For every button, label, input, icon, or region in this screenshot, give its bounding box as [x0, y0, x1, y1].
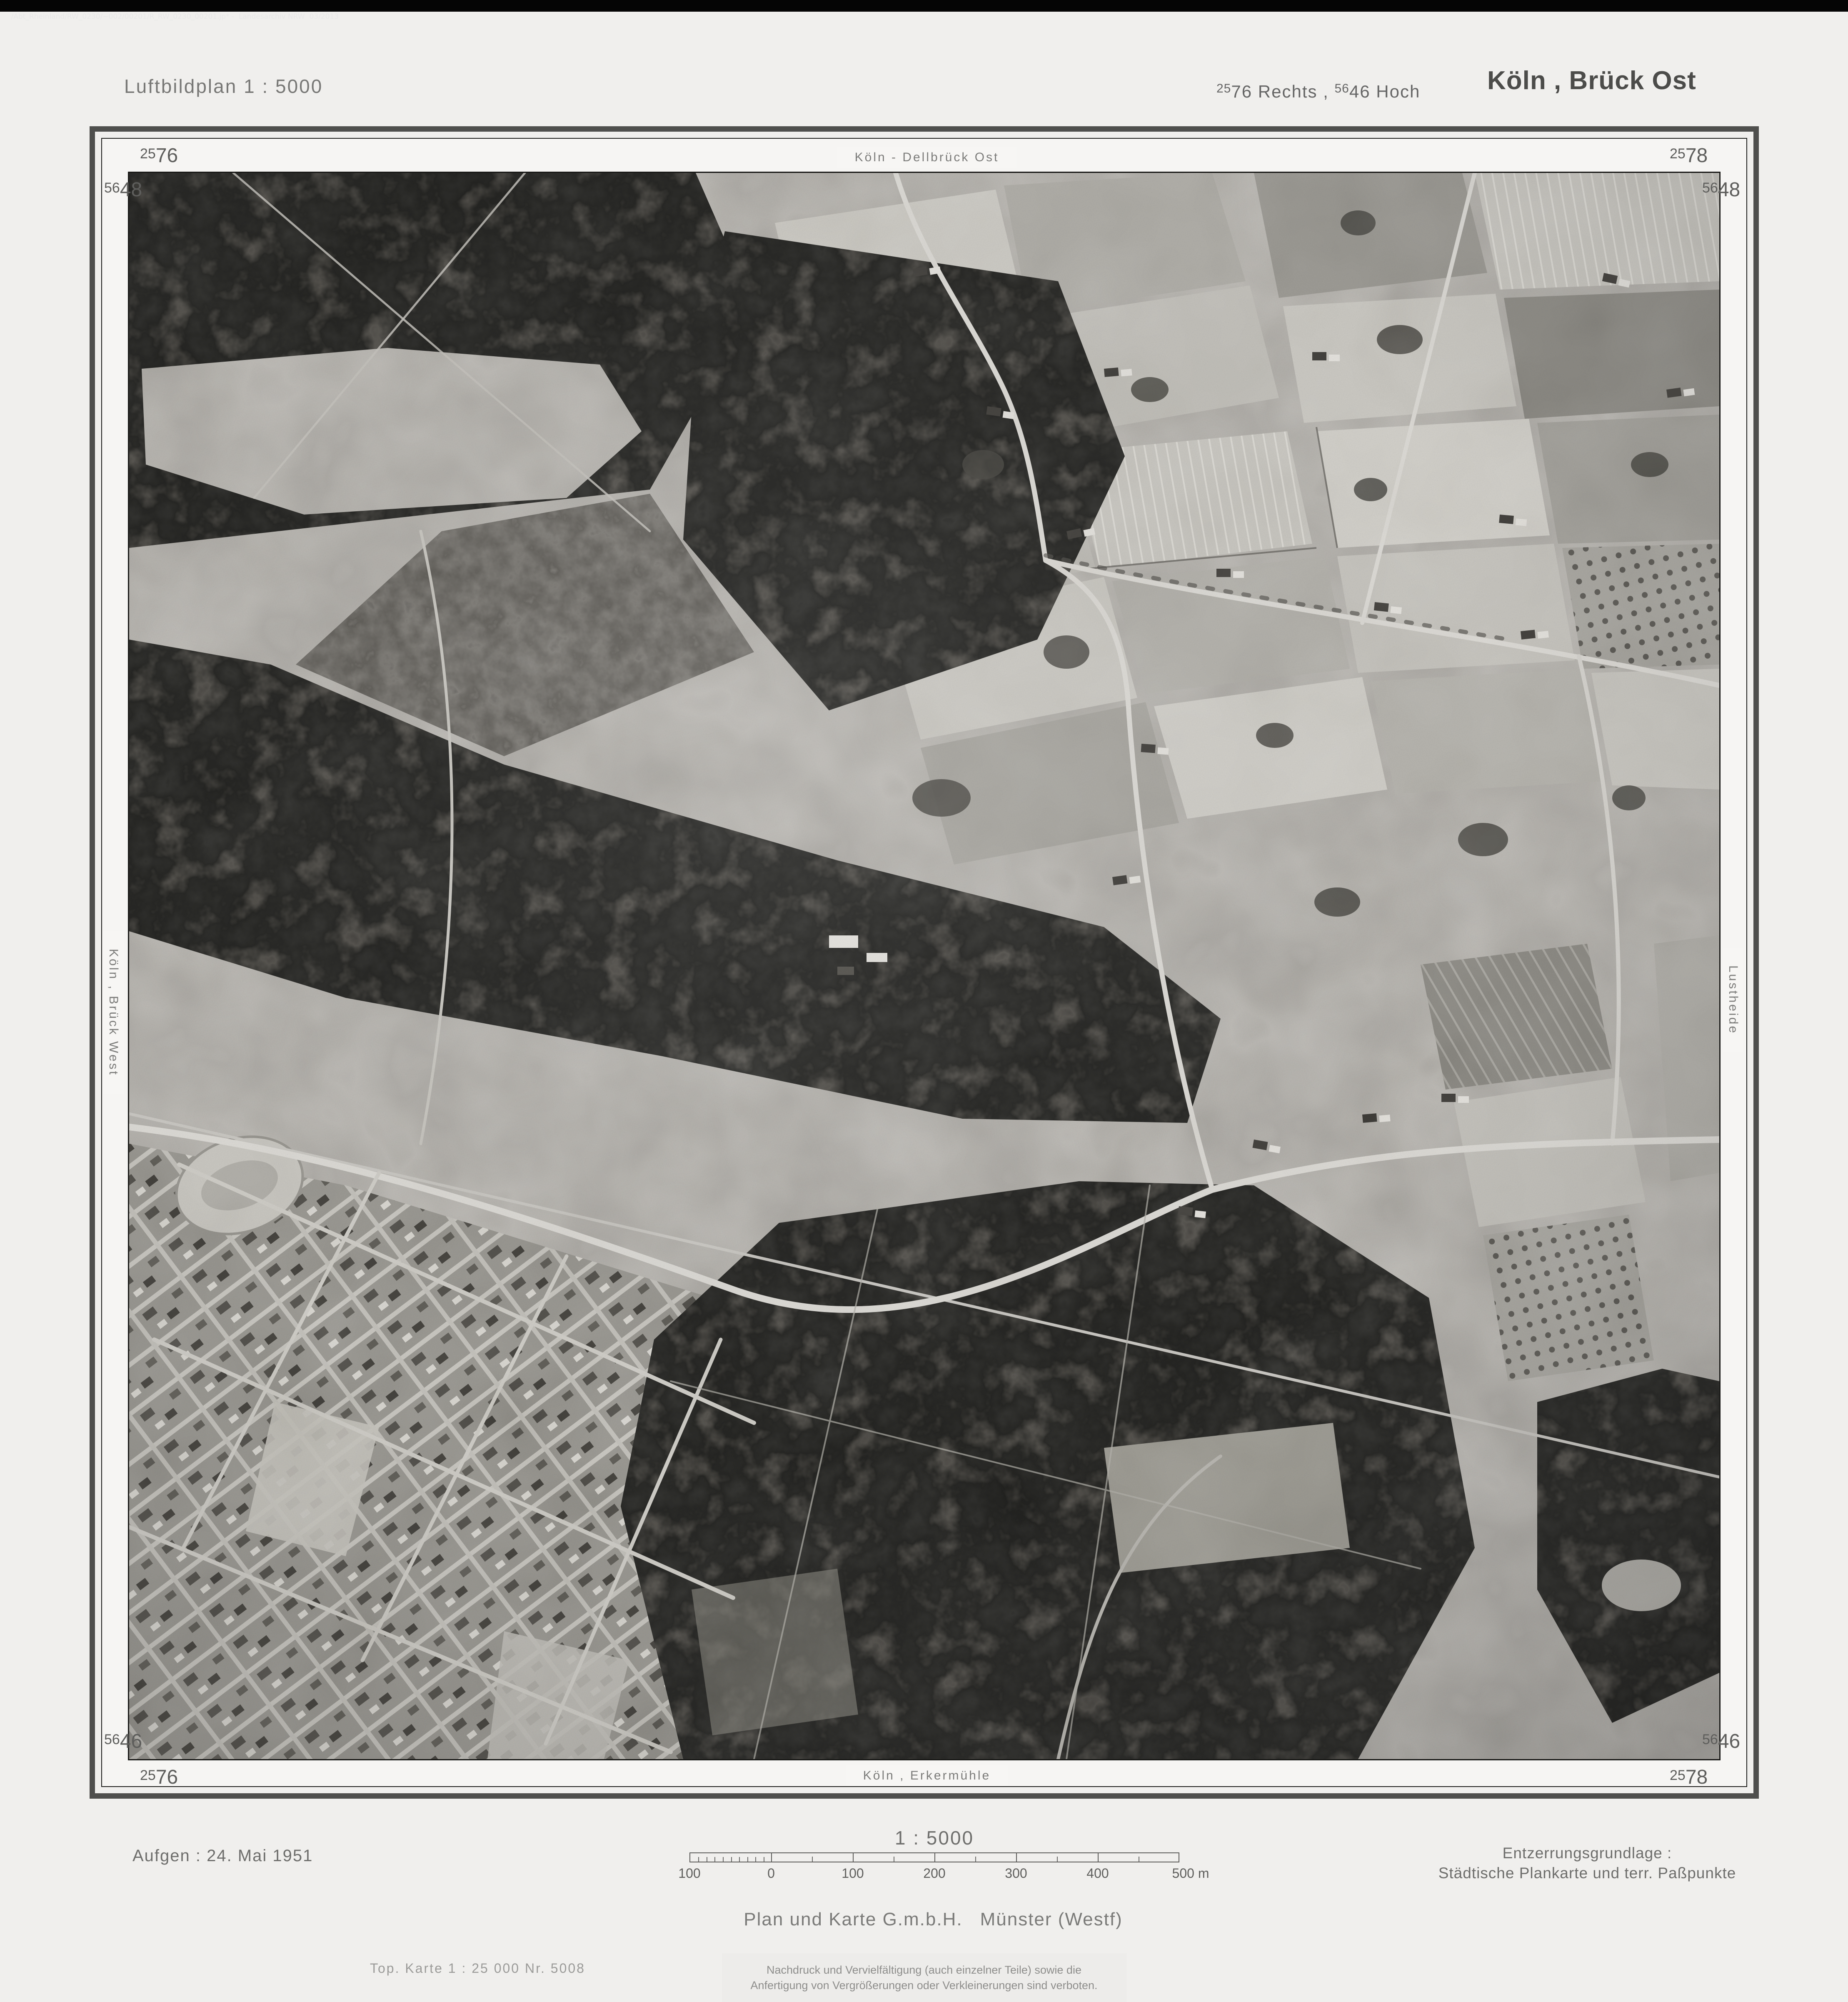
plan-type-label: Luftbildplan 1 : 5000 — [124, 75, 323, 97]
survey-date: Aufgen : 24. Mai 1951 — [132, 1847, 313, 1865]
grid-ref-hoch-word: Hoch — [1376, 82, 1420, 101]
photo-border — [128, 172, 1721, 1760]
copyright-note: Nachdruck und Vervielfältigung (auch ein… — [737, 1962, 1111, 1993]
scale-tick-label: 0 — [767, 1866, 775, 1881]
sheet-title: Köln , Brück Ost — [1487, 66, 1696, 95]
scale-unit-label: 500 m — [1172, 1866, 1209, 1881]
publisher: Plan und Karte G.m.b.H.Münster (Westf) — [683, 1909, 1183, 1930]
publisher-name: Plan und Karte G.m.b.H. — [744, 1909, 962, 1930]
adjoining-sheet-right: Lustheide — [1723, 948, 1743, 1052]
coord-bottom-left-east: 2576 — [140, 1766, 178, 1789]
grid-ref-hoch-num: 46 — [1349, 82, 1371, 101]
adjoining-sheet-top: Köln - Dellbrück Ost — [837, 147, 1017, 168]
topo-map-reference: Top. Karte 1 : 25 000 Nr. 5008 — [370, 1961, 585, 1976]
rectification-line1: Entzerrungsgrundlage : — [1400, 1843, 1775, 1863]
coord-bottom-left-north: 5646 — [104, 1730, 142, 1753]
coord-top-left-east: 2576 — [140, 144, 178, 167]
coord-bottom-right-east: 2578 — [1670, 1766, 1708, 1789]
map-sheet-page: /Abt_Rheinland/RW_0230/~002/00201/R_RW_0… — [0, 0, 1848, 2002]
grid-ref-rechts-sup: 25 — [1216, 82, 1231, 95]
scale-tick-label: 100 — [678, 1866, 700, 1881]
rectification-note: Entzerrungsgrundlage : Städtische Planka… — [1400, 1843, 1775, 1883]
grid-ref-hoch-sup: 56 — [1335, 82, 1349, 95]
adjoining-sheet-left: Köln , Brück West — [103, 931, 124, 1094]
coord-top-right-north: 5648 — [1702, 178, 1740, 201]
scale-bar — [689, 1852, 1179, 1862]
rectification-line2: Städtische Plankarte und terr. Paßpunkte — [1400, 1863, 1775, 1883]
viewer-titlebar: /Abt_Rheinland/RW_0230/~002/00201/R_RW_0… — [0, 0, 1848, 12]
scale-tick-label: 400 — [1086, 1866, 1109, 1881]
coord-top-left-north: 5648 — [104, 178, 142, 201]
scale-tick-label: 200 — [923, 1866, 945, 1881]
coord-top-right-east: 2578 — [1670, 144, 1708, 167]
scale-ratio: 1 : 5000 — [895, 1827, 974, 1849]
grid-reference: 2576 Rechts , 5646 Hoch — [1216, 82, 1420, 102]
publisher-city: Münster (Westf) — [980, 1909, 1123, 1930]
copyright-line2: Anfertigung von Vergrößerungen oder Verk… — [737, 1978, 1111, 1993]
scale-tick-label: 100 — [842, 1866, 864, 1881]
grid-ref-rechts-num: 76 — [1231, 82, 1252, 101]
scale-tick-label: 300 — [1005, 1866, 1027, 1881]
grid-ref-rechts-word: Rechts , — [1258, 82, 1329, 101]
adjoining-sheet-bottom: Köln , Erkermühle — [846, 1765, 1008, 1786]
viewer-titlebar-text: /Abt_Rheinland/RW_0230/~002/00201/R_RW_0… — [11, 12, 339, 21]
copyright-line1: Nachdruck und Vervielfältigung (auch ein… — [737, 1962, 1111, 1978]
coord-bottom-right-north: 5646 — [1702, 1730, 1740, 1753]
